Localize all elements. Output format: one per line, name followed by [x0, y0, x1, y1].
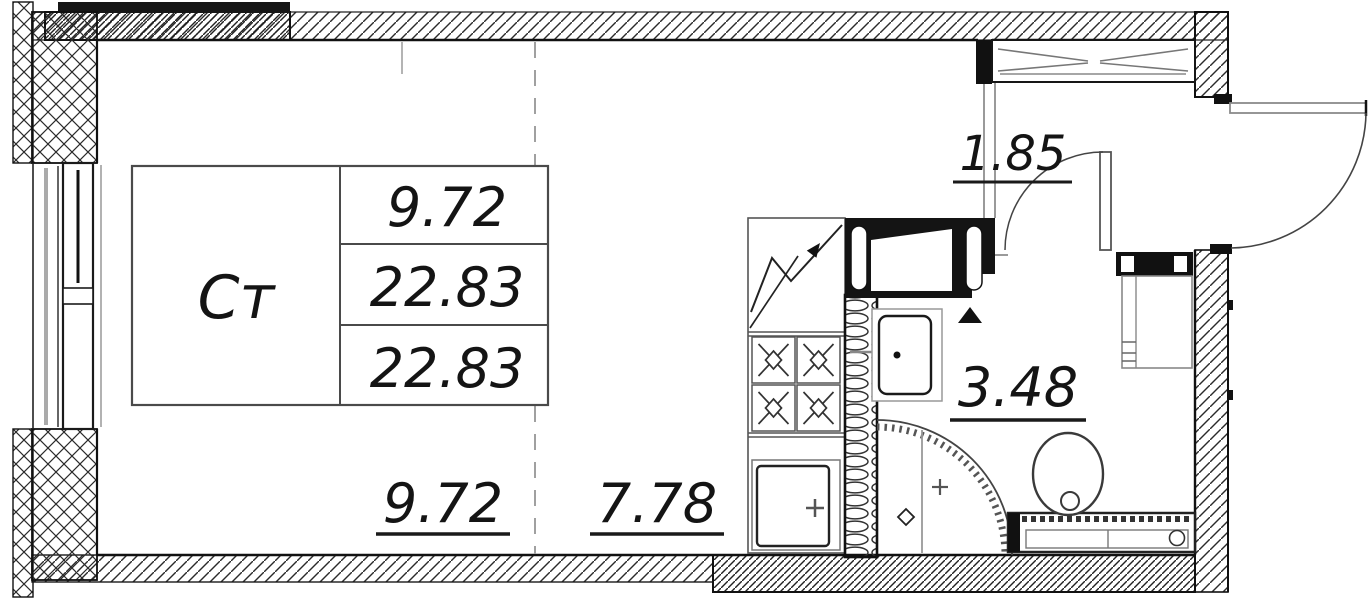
wall-left-pier-bottom	[32, 429, 97, 580]
window-mullion	[63, 288, 93, 304]
floor-plan-canvas: Ст 9.72 22.83 22.83	[0, 0, 1369, 600]
wall-left-pier-top	[32, 12, 97, 163]
wardrobe	[976, 40, 1195, 84]
wall-right	[1195, 250, 1228, 592]
kitchen-sink	[752, 460, 840, 550]
washing-machine	[845, 218, 995, 298]
area-value-3: 22.83	[370, 337, 525, 400]
area-table: Ст 9.72 22.83 22.83	[132, 166, 548, 405]
area-value-1: 9.72	[387, 176, 507, 239]
wall-right-pier	[1195, 12, 1228, 97]
wall-left-outer-top	[13, 2, 33, 163]
dimension-label-living: 9.72	[383, 472, 503, 535]
dimension-label-hall: 1.85	[960, 126, 1067, 182]
dimension-label-bath: 3.48	[958, 356, 1078, 419]
room-type-label: Ст	[198, 263, 277, 333]
wall-bottom-thick	[713, 555, 1195, 592]
wall-left-outer-bottom	[13, 429, 33, 597]
area-value-2: 22.83	[370, 256, 525, 319]
entrance-door-leaf	[1230, 103, 1366, 113]
towel-rail	[1008, 513, 1195, 552]
kitchen-counter	[748, 218, 845, 553]
bathroom-door-leaf	[1100, 152, 1111, 250]
dimension-label-kitchen: 7.78	[597, 472, 717, 535]
wall-bottom	[32, 555, 713, 582]
ventilation-shaft	[1116, 252, 1193, 368]
toilet	[1033, 433, 1103, 515]
